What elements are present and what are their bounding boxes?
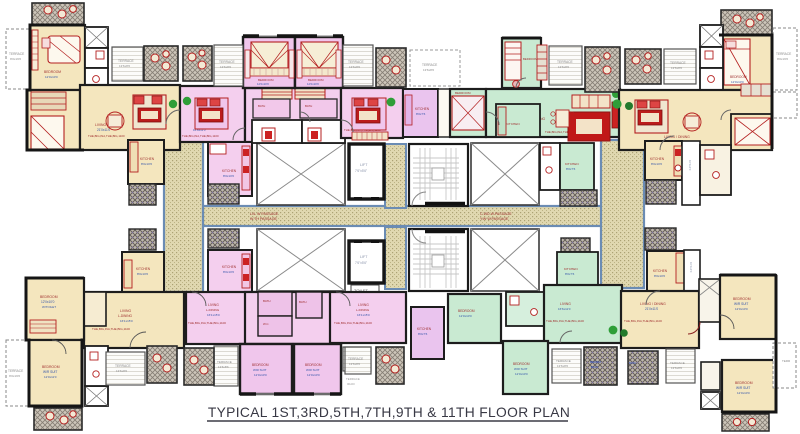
- svg-text:BATH: BATH: [305, 104, 312, 108]
- svg-text:KITCHEN: KITCHEN: [140, 157, 155, 161]
- svg-text:9'0x19'6: 9'0x19'6: [9, 374, 20, 378]
- svg-text:LIVING: LIVING: [560, 302, 571, 306]
- svg-text:TERRACE: TERRACE: [346, 377, 360, 381]
- svg-text:TERRACE: TERRACE: [776, 52, 791, 56]
- svg-text:KITCHEN: KITCHEN: [415, 107, 430, 111]
- svg-text:BEDROOM: BEDROOM: [42, 365, 60, 369]
- svg-text:12'0x10'0: 12'0x10'0: [45, 75, 58, 79]
- svg-text:12'0x10'0: 12'0x10'0: [307, 82, 319, 86]
- svg-text:8'0x10'6: 8'0x10'6: [141, 162, 152, 166]
- svg-text:L-DINING: L-DINING: [206, 308, 220, 312]
- svg-text:TERRACE: TERRACE: [556, 359, 571, 363]
- svg-text:13'6x8'6: 13'6x8'6: [558, 65, 569, 69]
- svg-text:BATH: BATH: [258, 104, 265, 108]
- svg-text:W/R SUIT: W/R SUIT: [514, 367, 528, 371]
- svg-text:W/TOILET: W/TOILET: [42, 305, 56, 309]
- svg-text:BEDROOM: BEDROOM: [40, 295, 58, 299]
- svg-text:16'6x11'0: 16'6x11'0: [558, 307, 571, 311]
- svg-text:KITCHEN: KITCHEN: [650, 157, 665, 161]
- svg-text:BEDROOM: BEDROOM: [305, 363, 322, 367]
- svg-text:LIFT: LIFT: [360, 163, 368, 167]
- svg-text:BEDROOM: BEDROOM: [730, 75, 747, 79]
- svg-text:LIVING: LIVING: [208, 303, 219, 307]
- svg-text:KITCHEN: KITCHEN: [222, 265, 237, 269]
- svg-text:W/R SUIT: W/R SUIT: [306, 368, 320, 372]
- svg-text:BEDROOM: BEDROOM: [735, 381, 753, 385]
- svg-text:TERRACE: TERRACE: [219, 60, 236, 64]
- svg-text:BATH: BATH: [629, 361, 636, 365]
- svg-text:KITCHEN: KITCHEN: [222, 169, 237, 173]
- svg-text:13'6x8'6: 13'6x8'6: [557, 364, 568, 368]
- svg-text:TERRACE: TERRACE: [670, 61, 687, 65]
- svg-text:10'2x4'0: 10'2x4'0: [688, 160, 692, 171]
- svg-text:KITCHEN: KITCHEN: [653, 269, 668, 273]
- svg-text:TERRACE: TERRACE: [115, 364, 132, 368]
- svg-text:L-DINING: L-DINING: [356, 308, 370, 312]
- svg-text:THE,BIG,INA,THE,BIG,1100: THE,BIG,INA,THE,BIG,1100: [182, 134, 219, 138]
- svg-text:BEDROOM: BEDROOM: [733, 297, 751, 301]
- svg-text:W/R SUIT: W/R SUIT: [253, 368, 267, 372]
- svg-text:12'0x10'0: 12'0x10'0: [41, 300, 55, 304]
- svg-text:8'0x10'6: 8'0x10'6: [223, 174, 234, 178]
- svg-text:BEDRM: BEDRM: [590, 360, 601, 364]
- svg-text:13'6x8'6: 13'6x8'6: [671, 66, 682, 70]
- svg-text:16'1x15'0: 16'1x15'0: [357, 313, 370, 317]
- svg-text:TERRACE: TERRACE: [118, 59, 135, 63]
- svg-text:TERR: TERR: [782, 359, 791, 363]
- svg-text:KITCHEN: KITCHEN: [565, 162, 579, 166]
- svg-text:BEDROOM: BEDROOM: [44, 70, 61, 74]
- svg-text:BEDROOM: BEDROOM: [523, 57, 538, 61]
- svg-text:12'0x11'0: 12'0x11'0: [44, 375, 57, 379]
- svg-text:KITCHEN: KITCHEN: [136, 267, 151, 271]
- svg-text:TYPICAL 1ST,3RD,5TH,7TH,9TH &: TYPICAL 1ST,3RD,5TH,7TH,9TH & 11TH FLOOR…: [208, 405, 570, 420]
- svg-text:8'0x7'6: 8'0x7'6: [565, 272, 575, 276]
- svg-text:8'0x10'6: 8'0x10'6: [223, 270, 234, 274]
- svg-text:16'1x15'0: 16'1x15'0: [120, 319, 133, 323]
- svg-text:12'0x10'0: 12'0x10'0: [307, 373, 320, 377]
- svg-text:KITCHEN: KITCHEN: [564, 267, 578, 271]
- svg-text:BATH: BATH: [263, 299, 271, 303]
- svg-text:BEDROOM: BEDROOM: [513, 362, 530, 366]
- svg-text:Y.W W.PASSAGE: Y.W W.PASSAGE: [480, 217, 509, 221]
- svg-text:8'0x7'6: 8'0x7'6: [418, 332, 428, 336]
- svg-text:KITCHEN: KITCHEN: [506, 122, 520, 126]
- svg-text:THE,BIG,INA,THE,BIG,1100: THE,BIG,INA,THE,BIG,1100: [88, 134, 125, 138]
- svg-text:TERRACE: TERRACE: [422, 63, 437, 67]
- svg-text:9'0x19'6: 9'0x19'6: [777, 57, 788, 61]
- svg-text:7'6"x5'6": 7'6"x5'6": [355, 261, 367, 265]
- svg-text:13'6x8'6: 13'6x8'6: [349, 362, 360, 366]
- svg-text:C.WD W.PASSAGE: C.WD W.PASSAGE: [480, 212, 512, 216]
- svg-text:W/R SUIT: W/R SUIT: [734, 302, 748, 306]
- svg-text:BALC: BALC: [591, 365, 598, 369]
- svg-text:TERRACE: TERRACE: [8, 369, 23, 373]
- svg-text:13'6x8'6: 13'6x8'6: [423, 68, 434, 72]
- svg-text:TERRACE: TERRACE: [348, 357, 363, 361]
- svg-text:BEDROOM: BEDROOM: [458, 309, 475, 313]
- svg-text:THE,BIG,INA,THE,BIG,1100: THE,BIG,INA,THE,BIG,1100: [546, 319, 584, 323]
- svg-text:TERRACE: TERRACE: [670, 361, 685, 365]
- svg-text:LIVING: LIVING: [120, 309, 131, 313]
- svg-text:W/R SUIT: W/R SUIT: [43, 370, 57, 374]
- svg-text:12'0x10'0: 12'0x10'0: [459, 314, 472, 318]
- svg-text:BEDROOM: BEDROOM: [455, 91, 471, 95]
- svg-text:8'0x10'6: 8'0x10'6: [654, 274, 665, 278]
- svg-text:12'0x10'0: 12'0x10'0: [737, 391, 750, 395]
- svg-text:13'6x8'6: 13'6x8'6: [349, 65, 360, 69]
- svg-text:THE,BIG,INA,THE,BIG,1100: THE,BIG,INA,THE,BIG,1100: [188, 321, 226, 325]
- svg-text:BEDROOM: BEDROOM: [252, 363, 269, 367]
- svg-text:LIVING: LIVING: [358, 303, 369, 307]
- svg-text:L-DINING: L-DINING: [118, 314, 133, 318]
- svg-text:00x00: 00x00: [347, 382, 355, 386]
- svg-text:THE,BIG,INA,THE,BIG,1100: THE,BIG,INA,THE,BIG,1100: [624, 319, 662, 323]
- svg-text:21'0x11'0: 21'0x11'0: [97, 128, 110, 132]
- svg-text:LVL W PASSAGE: LVL W PASSAGE: [250, 212, 279, 216]
- svg-text:13'6x8'6: 13'6x8'6: [220, 65, 231, 69]
- svg-text:9'0x19'6: 9'0x19'6: [10, 57, 21, 61]
- svg-text:16'1x15'0: 16'1x15'0: [207, 313, 220, 317]
- svg-text:10'2x4'0: 10'2x4'0: [689, 262, 693, 273]
- svg-text:13'6x8'6: 13'6x8'6: [671, 366, 682, 370]
- svg-text:13'6x8'6: 13'6x8'6: [116, 369, 127, 373]
- svg-text:THE,BIG,INA,THE,BIG,1100: THE,BIG,INA,THE,BIG,1100: [334, 321, 372, 325]
- svg-text:12'0x10'0: 12'0x10'0: [257, 82, 269, 86]
- svg-text:TERRACE: TERRACE: [217, 360, 232, 364]
- svg-text:TERRACE: TERRACE: [9, 52, 24, 56]
- svg-text:8'0x7'6: 8'0x7'6: [416, 112, 426, 116]
- svg-text:7'6"x5'6": 7'6"x5'6": [355, 169, 367, 173]
- svg-text:W.TH PASSAGE: W.TH PASSAGE: [250, 217, 277, 221]
- svg-text:THE,BIG,INA,THE,BIG,1100: THE,BIG,INA,THE,BIG,1100: [92, 327, 130, 331]
- svg-text:8'0x10'6: 8'0x10'6: [137, 272, 148, 276]
- svg-text:W/R SUIT: W/R SUIT: [736, 386, 750, 390]
- svg-text:LIVING / DINING: LIVING / DINING: [640, 302, 666, 306]
- svg-text:TERRACE: TERRACE: [348, 60, 365, 64]
- svg-text:TERRACE: TERRACE: [557, 60, 574, 64]
- svg-text:W.C.: W.C.: [263, 322, 269, 326]
- svg-text:13'6x8'6: 13'6x8'6: [119, 64, 130, 68]
- svg-text:8'0x10'6: 8'0x10'6: [651, 162, 662, 166]
- svg-text:13'6x8'6: 13'6x8'6: [218, 365, 229, 369]
- svg-text:12'0x10'0: 12'0x10'0: [515, 372, 528, 376]
- svg-text:BATH: BATH: [299, 300, 307, 304]
- svg-text:12'0x10'0: 12'0x10'0: [735, 307, 748, 311]
- svg-text:8'0x7'6: 8'0x7'6: [566, 167, 576, 171]
- svg-text:12'0x10'0: 12'0x10'0: [254, 373, 267, 377]
- svg-text:LIFT: LIFT: [360, 255, 368, 259]
- svg-text:21'0x11'0: 21'0x11'0: [645, 307, 658, 311]
- svg-text:KITCHEN: KITCHEN: [417, 327, 432, 331]
- svg-text:12'0x10'0: 12'0x10'0: [731, 80, 744, 84]
